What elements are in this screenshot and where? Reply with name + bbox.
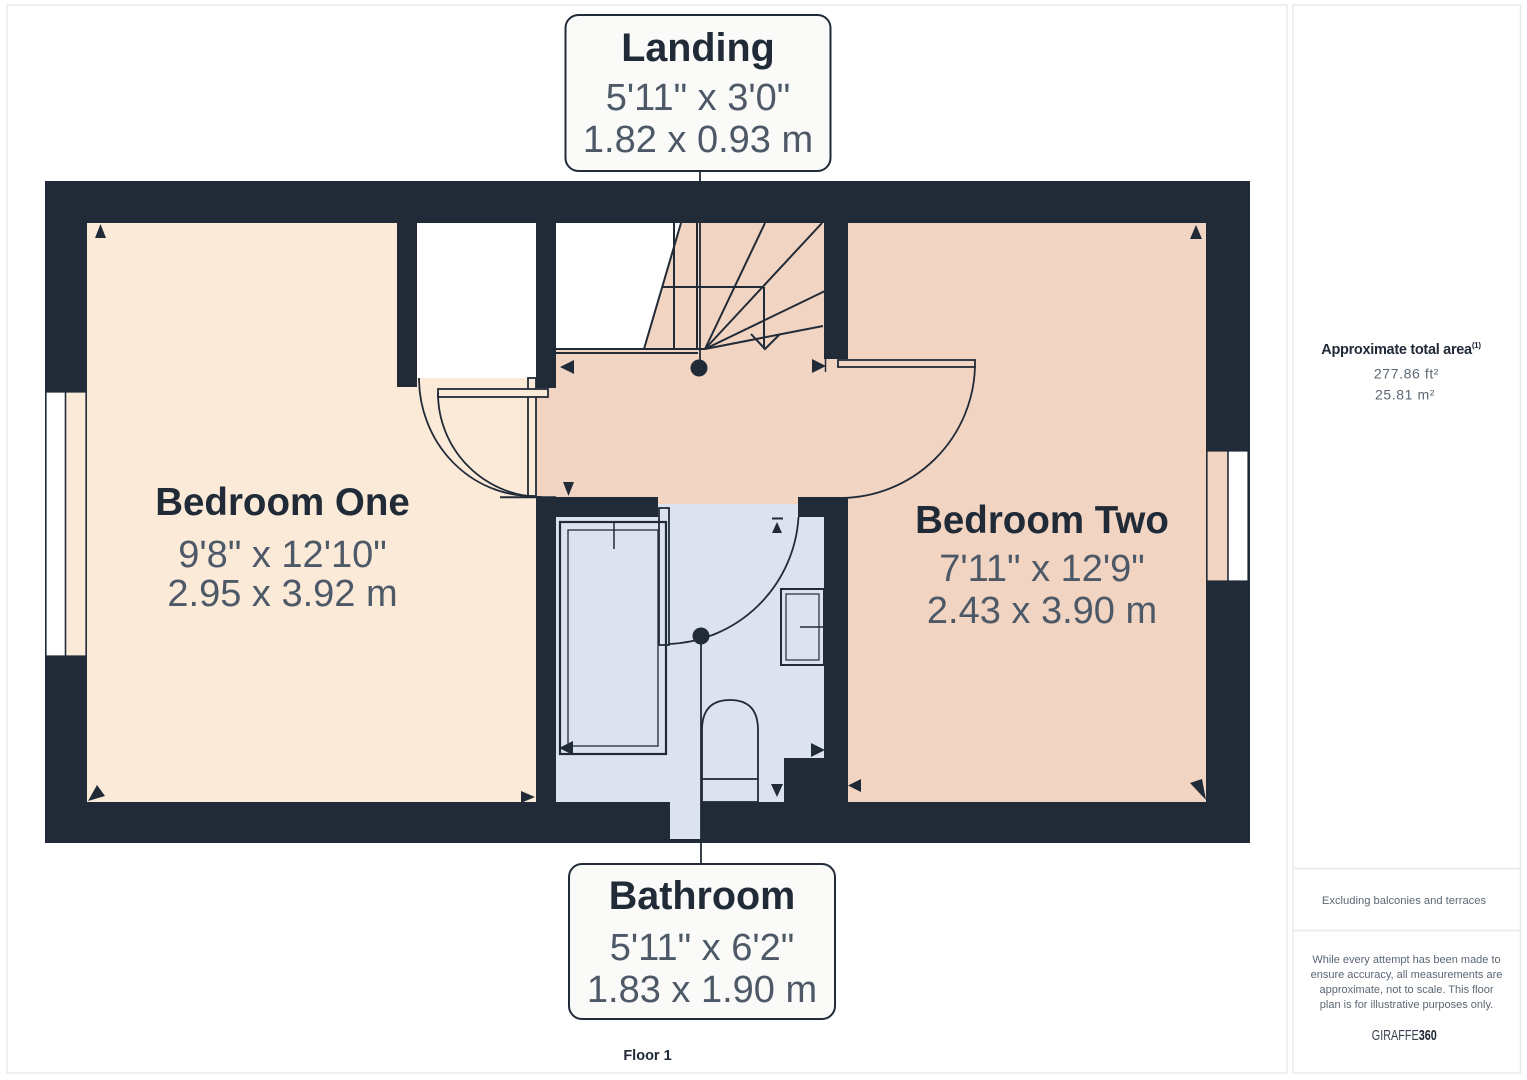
svg-text:Bedroom One: Bedroom One [155,481,410,524]
svg-text:GIRAFFE360: GIRAFFE360 [1372,1028,1437,1044]
svg-text:2.43 x 3.90 m: 2.43 x 3.90 m [927,590,1157,632]
svg-text:Excluding balconies and terrac: Excluding balconies and terraces [1322,895,1487,907]
svg-text:Approximate total area(1): Approximate total area(1) [1321,341,1481,358]
svg-text:ensure accuracy, all measureme: ensure accuracy, all measurements are [1311,969,1503,981]
svg-text:Bathroom: Bathroom [609,874,796,918]
svg-text:7'11" x 12'9": 7'11" x 12'9" [939,548,1145,590]
svg-text:5'11" x 6'2": 5'11" x 6'2" [610,927,794,969]
svg-text:25.81 m²: 25.81 m² [1375,387,1435,403]
svg-text:1.83 x 1.90 m: 1.83 x 1.90 m [587,969,817,1011]
svg-text:9'8" x 12'10": 9'8" x 12'10" [178,534,386,576]
svg-text:2.95 x 3.92 m: 2.95 x 3.92 m [167,573,397,615]
svg-text:Floor 1: Floor 1 [623,1048,671,1064]
svg-text:While every attempt has been m: While every attempt has been made to [1312,954,1500,966]
svg-text:277.86 ft²: 277.86 ft² [1374,366,1439,382]
svg-text:approximate, not to scale. Thi: approximate, not to scale. This floor [1319,984,1493,996]
svg-text:Bedroom Two: Bedroom Two [915,499,1169,542]
svg-text:5'11" x 3'0": 5'11" x 3'0" [606,77,790,119]
svg-text:1.82 x 0.93 m: 1.82 x 0.93 m [583,119,813,161]
svg-text:Landing: Landing [621,26,775,70]
svg-text:plan is for illustrative purpo: plan is for illustrative purposes only. [1320,999,1493,1011]
